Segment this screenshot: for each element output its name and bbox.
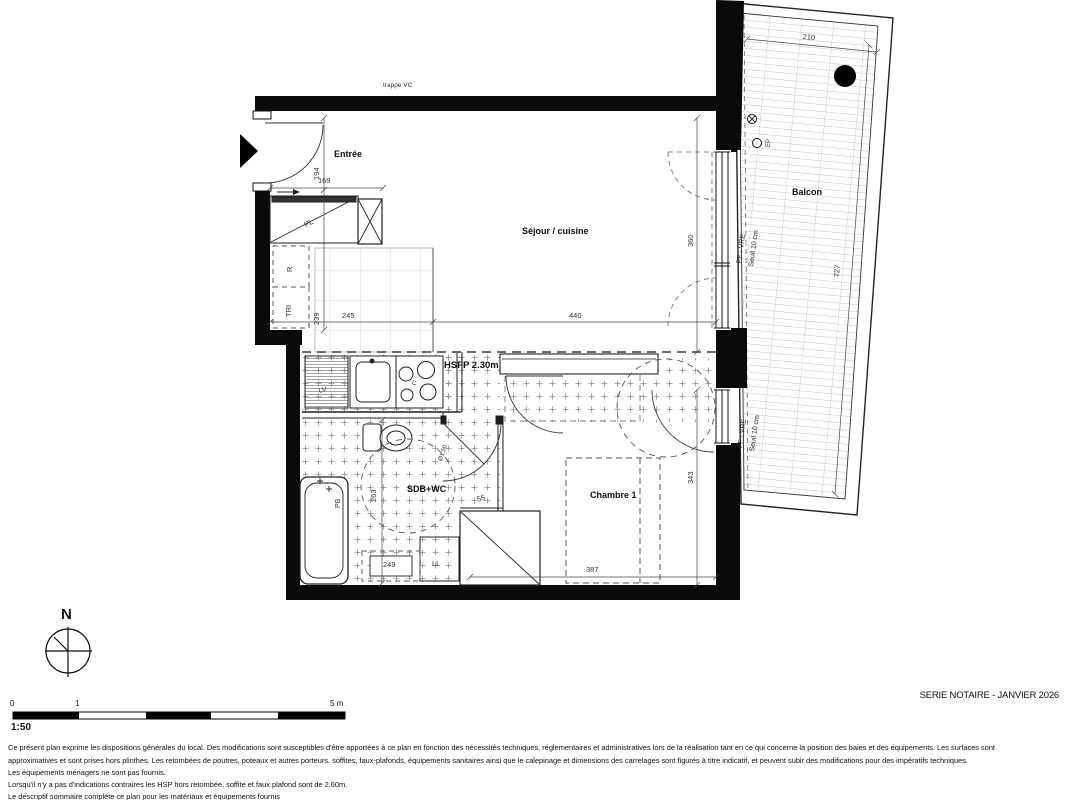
dishwasher [305, 356, 348, 408]
dim-210: 210 [802, 33, 815, 42]
room-label-sejour: Séjour / cuisine [522, 227, 589, 236]
cooktop [396, 356, 443, 408]
dim-263: 263 [370, 489, 378, 502]
ll-label: LL [432, 560, 440, 568]
dim-245: 245 [342, 312, 355, 320]
technical-duct [358, 199, 382, 244]
kitchen-counter [302, 356, 460, 412]
balcony [735, 3, 893, 515]
room-label-sdb: SDB+WC [407, 485, 446, 494]
dim-387: 387 [586, 566, 599, 574]
entry-closet-pl [270, 196, 358, 243]
dim-55: 55 [476, 494, 486, 503]
cooktop-label: C [412, 381, 416, 387]
disclaimer-line-2: approximatives et sont prises hors plint… [8, 756, 968, 765]
kitchen-tile-grid [315, 248, 433, 352]
ep-label: EP [766, 139, 772, 147]
dim-169: 169 [318, 177, 331, 185]
disclaimer-line-5: Le descriptif sommaire complète ce plan … [8, 792, 280, 800]
balcony-drain-dot [834, 65, 856, 87]
disclaimer-line-3: Les équipements ménagers ne sont pas fou… [8, 768, 166, 777]
sejour-chambre-wall [500, 354, 658, 374]
scale-ratio-label: 1:50 [11, 723, 31, 733]
scale-bar [13, 712, 345, 719]
hsfp-label: HSFP 2.30m [444, 361, 499, 371]
room-label-chambre: Chambre 1 [590, 491, 637, 500]
kitchen-sink [350, 356, 396, 408]
room-label-entree: Entrée [334, 150, 362, 159]
chambre-closet [460, 511, 540, 585]
dim-440: 440 [569, 312, 582, 320]
room-label-balcon: Balcon [792, 188, 822, 197]
trappe-vc-label: trappe VC [383, 83, 412, 90]
wc-toilet [363, 424, 412, 451]
floor-plan-drawing [0, 0, 1092, 800]
pb-label: PB [335, 499, 342, 508]
dim-727: 727 [833, 265, 841, 278]
bathtub [300, 477, 348, 584]
scale-five-label: 5 m [330, 700, 343, 708]
scale-zero-label: 0 [10, 700, 14, 708]
north-compass [45, 627, 92, 677]
scale-one-label: 1 [75, 700, 79, 708]
dim-249: 249 [383, 561, 396, 569]
disclaimer-line-1: Ce présent plan exprime les dispositions… [8, 743, 995, 752]
fridge-label: R [286, 267, 294, 272]
dim-239: 239 [313, 312, 321, 325]
series-title: SERIE NOTAIRE - JANVIER 2026 [903, 690, 1059, 701]
sejour-window [668, 150, 731, 330]
floor-plan-page: trappe VC Entrée Séjour / cuisine Balcon… [0, 0, 1092, 800]
tri-label: TRI [285, 305, 293, 317]
bed-outline [566, 458, 660, 583]
north-label: N [61, 607, 72, 622]
disclaimer-line-4: Lorsqu'il n'y a pas d'indications contra… [8, 780, 347, 789]
dim-343: 343 [687, 471, 695, 484]
dim-360: 360 [687, 234, 695, 247]
